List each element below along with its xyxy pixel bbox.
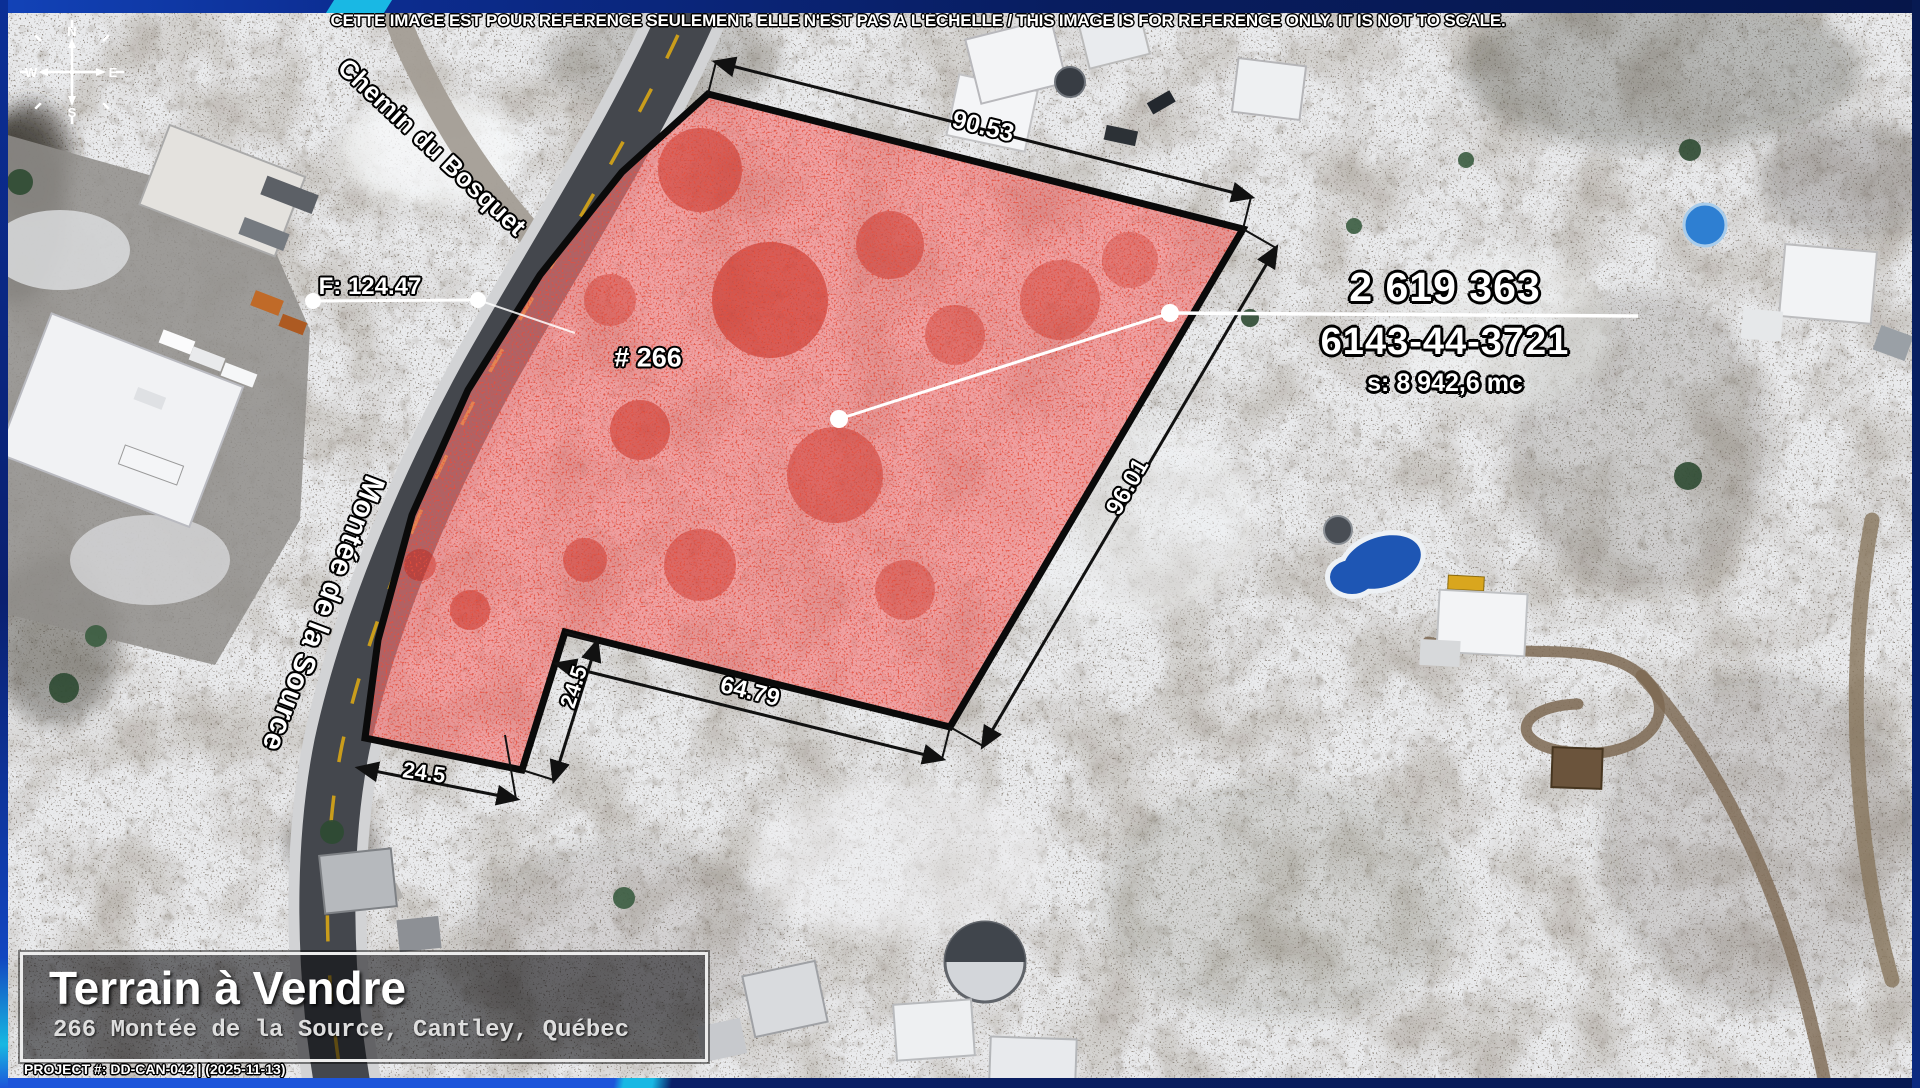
banner-title: Terrain à Vendre bbox=[49, 961, 406, 1015]
aerial-scene bbox=[8, 13, 1912, 1078]
aerial-photo bbox=[8, 13, 1912, 1078]
frame-right-border bbox=[1912, 0, 1920, 1088]
banner-address: 266 Montée de la Source, Cantley, Québec bbox=[53, 1017, 629, 1044]
project-id-label: PROJECT #: DD-CAN-042 | (2025-11-13) bbox=[24, 1061, 285, 1077]
compass-south-label: S bbox=[68, 105, 77, 120]
compass-icon: N E S W bbox=[16, 16, 128, 133]
civic-number-label: # 266 bbox=[614, 343, 682, 374]
marketing-image: N E S W CETTE IMAGE EST POUR RÉFÉRENCE S… bbox=[0, 0, 1920, 1088]
compass-west-label: W bbox=[25, 65, 38, 80]
frame-bottom-border bbox=[0, 1078, 1920, 1088]
lot-matricule: 6143-44-3721 bbox=[1255, 321, 1635, 364]
frame-top-border bbox=[0, 0, 1920, 13]
frame-top-accent bbox=[326, 0, 392, 13]
compass-east-label: E bbox=[109, 65, 118, 80]
lot-area: s: 8 942,6 mc bbox=[1255, 369, 1635, 398]
frontage-label: F: 124.47 bbox=[319, 273, 422, 301]
compass-north-label: N bbox=[67, 24, 76, 39]
lot-info-block: 2 619 363 6143-44-3721 s: 8 942,6 mc bbox=[1255, 264, 1635, 398]
frame-left-border bbox=[0, 0, 8, 1088]
sale-banner: Terrain à Vendre 266 Montée de la Source… bbox=[20, 952, 708, 1062]
disclaimer-text: CETTE IMAGE EST POUR RÉFÉRENCE SEULEMENT… bbox=[331, 11, 1506, 31]
lot-number: 2 619 363 bbox=[1255, 264, 1635, 311]
